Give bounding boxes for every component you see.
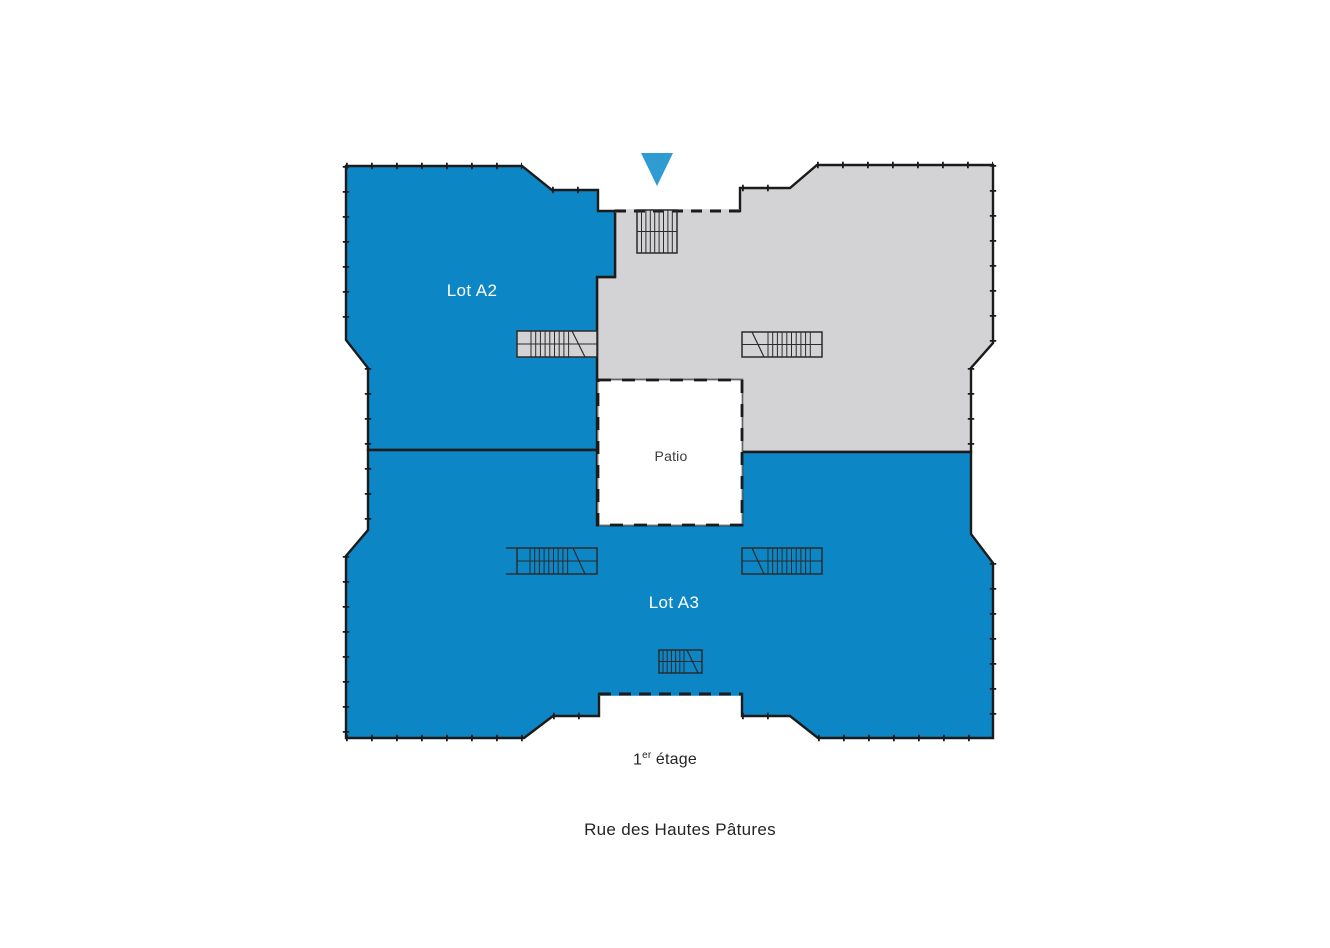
floor-ordinal-suffix: er xyxy=(642,750,651,761)
upper-left-staircase-icon xyxy=(517,331,597,357)
lot-a3-label: Lot A3 xyxy=(649,594,700,613)
lot-a2-label: Lot A2 xyxy=(447,282,498,301)
floor-number: 1 xyxy=(633,751,642,768)
entrance-marker-icon xyxy=(641,153,673,186)
street-caption: Rue des Hautes Pâtures xyxy=(584,821,776,840)
lot-a2-region[interactable] xyxy=(346,166,615,450)
patio-label: Patio xyxy=(655,449,688,464)
floorplan-page: Lot A2 Lot A3 Patio 1erétage Rue des Hau… xyxy=(0,0,1330,948)
floorplan-drawing xyxy=(0,0,1330,948)
floor-caption: 1erétage xyxy=(633,750,697,769)
floor-word: étage xyxy=(656,751,697,768)
